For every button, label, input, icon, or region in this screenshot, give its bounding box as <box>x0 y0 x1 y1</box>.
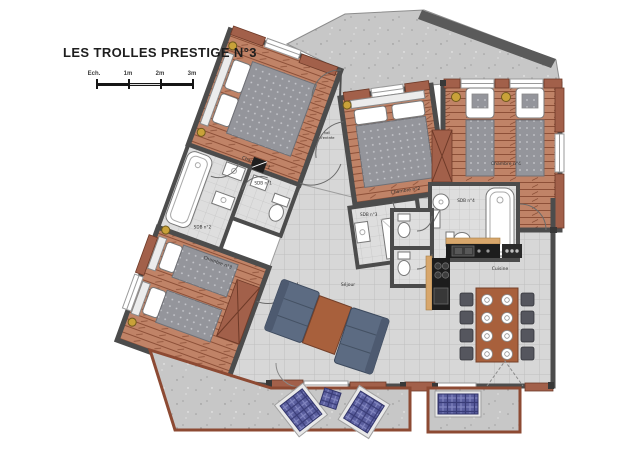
label-chambre-4: Chambre n°4 <box>491 161 521 167</box>
bench-icon <box>435 391 481 417</box>
brick-wall-segment <box>555 174 564 228</box>
chair-icon <box>521 293 534 306</box>
scale-mark-1m: 1m <box>124 71 133 77</box>
counter-trim <box>446 238 500 244</box>
mattress <box>356 116 434 187</box>
chair-icon <box>521 347 534 360</box>
label-sdb-3: SDB n°3 <box>360 212 378 217</box>
twin-bed-icon <box>466 88 494 176</box>
chair-icon <box>460 329 473 342</box>
pillow-icon <box>522 94 538 108</box>
lamp-icon <box>343 101 352 110</box>
brick-wall-segment <box>544 79 562 88</box>
mattress <box>466 120 494 176</box>
mattress <box>516 120 544 176</box>
wc-room <box>392 210 432 248</box>
brick-wall-segment <box>495 79 509 88</box>
pillow-icon <box>472 94 488 108</box>
scale-label: Ech. <box>88 71 101 77</box>
chair-icon <box>460 311 473 324</box>
lamp-icon <box>452 93 461 102</box>
label-sejour: Séjour <box>341 281 355 288</box>
sink-icon <box>355 221 371 243</box>
oven-icon <box>434 288 448 304</box>
counter-trim <box>426 256 432 310</box>
brick-wall-segment <box>444 79 460 88</box>
terrace-right <box>428 388 520 432</box>
scale-mark-2m: 2m <box>156 71 165 77</box>
double-bed-icon <box>350 90 436 187</box>
chair-icon <box>460 293 473 306</box>
brick-wall-segment <box>555 88 564 132</box>
label-hall-1: hall <box>324 131 330 135</box>
scale-bar: Ech. 1m 2m 3m <box>88 71 198 93</box>
page-title: LES TROLLES PRESTIGE N°3 <box>63 45 257 60</box>
toilet-icon <box>398 214 410 221</box>
label-hall-2: d'entrée <box>320 136 336 140</box>
label-sdb-1: SDB n°1 <box>254 181 272 186</box>
floor-plan: Chambre n°1 SDB n°1 <box>0 0 640 452</box>
chair-icon <box>460 347 473 360</box>
toilet-icon <box>398 252 410 259</box>
chair-icon <box>521 329 534 342</box>
scale-mark-3m: 3m <box>188 71 197 77</box>
label-sdb-4: SDB n°4 <box>457 198 475 203</box>
floor-plan-page: Chambre n°1 SDB n°1 <box>0 0 640 452</box>
label-sdb-2: SDB n°2 <box>194 225 212 230</box>
lamp-icon <box>502 93 511 102</box>
label-cuisine: Cuisine <box>492 266 509 272</box>
chair-icon <box>521 311 534 324</box>
sink-icon <box>433 194 449 210</box>
